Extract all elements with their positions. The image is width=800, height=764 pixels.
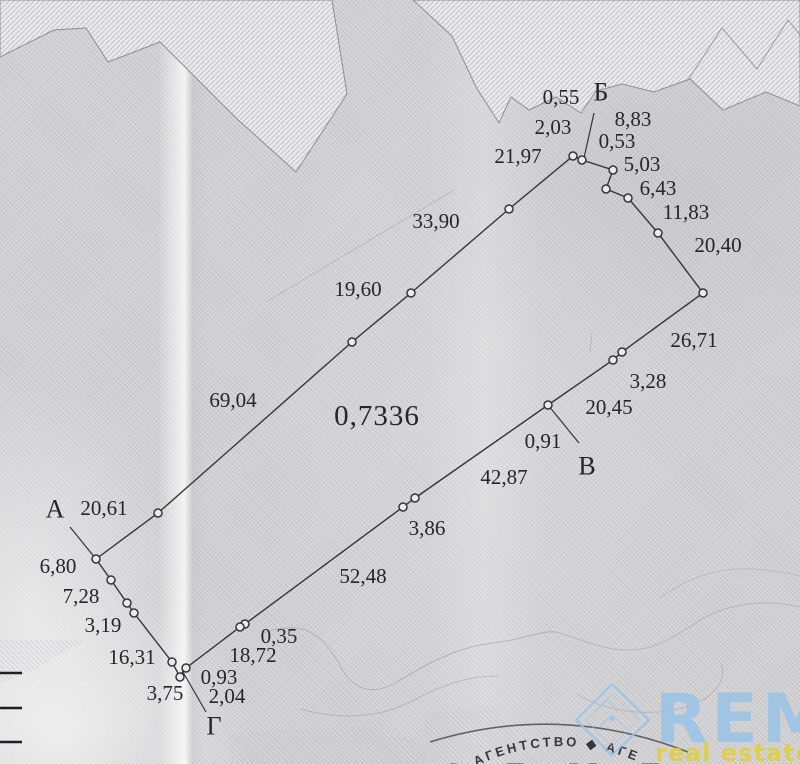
scanned-plan-page: 0,552,0321,978,830,535,036,4311,8320,403…: [0, 0, 800, 764]
paper-grain-overlay: [0, 0, 800, 764]
survey-plan-drawing: 0,552,0321,978,830,535,036,4311,8320,403…: [0, 0, 800, 764]
